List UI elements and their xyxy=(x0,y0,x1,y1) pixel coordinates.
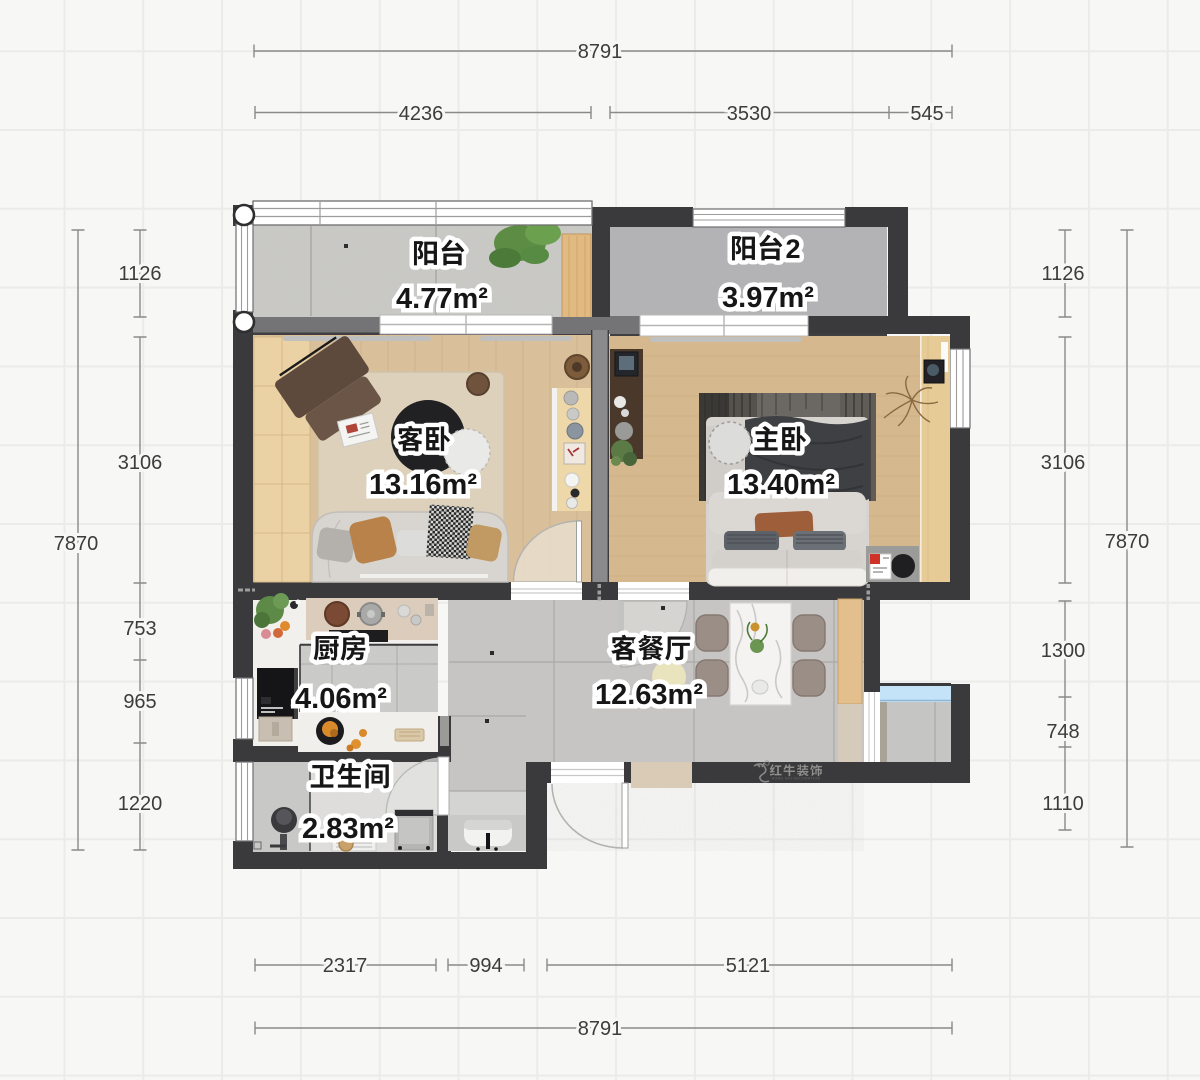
svg-text:13.16m²: 13.16m² xyxy=(369,469,477,501)
svg-text:5121: 5121 xyxy=(726,955,771,977)
svg-text:965: 965 xyxy=(123,691,156,713)
svg-text:8791: 8791 xyxy=(578,1018,623,1040)
svg-text:4.06m²: 4.06m² xyxy=(295,683,387,715)
svg-text:994: 994 xyxy=(469,955,502,977)
svg-text:2317: 2317 xyxy=(323,955,368,977)
svg-text:748: 748 xyxy=(1046,721,1079,743)
svg-text:2.83m²: 2.83m² xyxy=(302,813,394,845)
svg-text:1126: 1126 xyxy=(1041,263,1084,285)
svg-text:545: 545 xyxy=(910,103,943,125)
svg-text:13.40m²: 13.40m² xyxy=(727,469,835,501)
svg-text:2: 2 xyxy=(785,234,800,264)
svg-text:1300: 1300 xyxy=(1041,640,1086,662)
svg-text:3.97m²: 3.97m² xyxy=(722,282,814,314)
svg-text:4236: 4236 xyxy=(399,103,444,125)
svg-text:8791: 8791 xyxy=(578,41,623,63)
svg-text:7870: 7870 xyxy=(1105,531,1150,553)
svg-text:12.63m²: 12.63m² xyxy=(595,679,703,711)
svg-text:3106: 3106 xyxy=(118,452,163,474)
svg-text:3530: 3530 xyxy=(727,103,772,125)
svg-text:7870: 7870 xyxy=(54,533,99,555)
svg-text:753: 753 xyxy=(123,618,156,640)
svg-text:HONG NIU DECORATION: HONG NIU DECORATION xyxy=(772,777,821,781)
svg-text:4.77m²: 4.77m² xyxy=(396,283,488,315)
svg-text:3106: 3106 xyxy=(1041,452,1086,474)
svg-text:1220: 1220 xyxy=(118,793,163,815)
svg-text:1110: 1110 xyxy=(1042,793,1084,815)
svg-text:1126: 1126 xyxy=(118,263,161,285)
